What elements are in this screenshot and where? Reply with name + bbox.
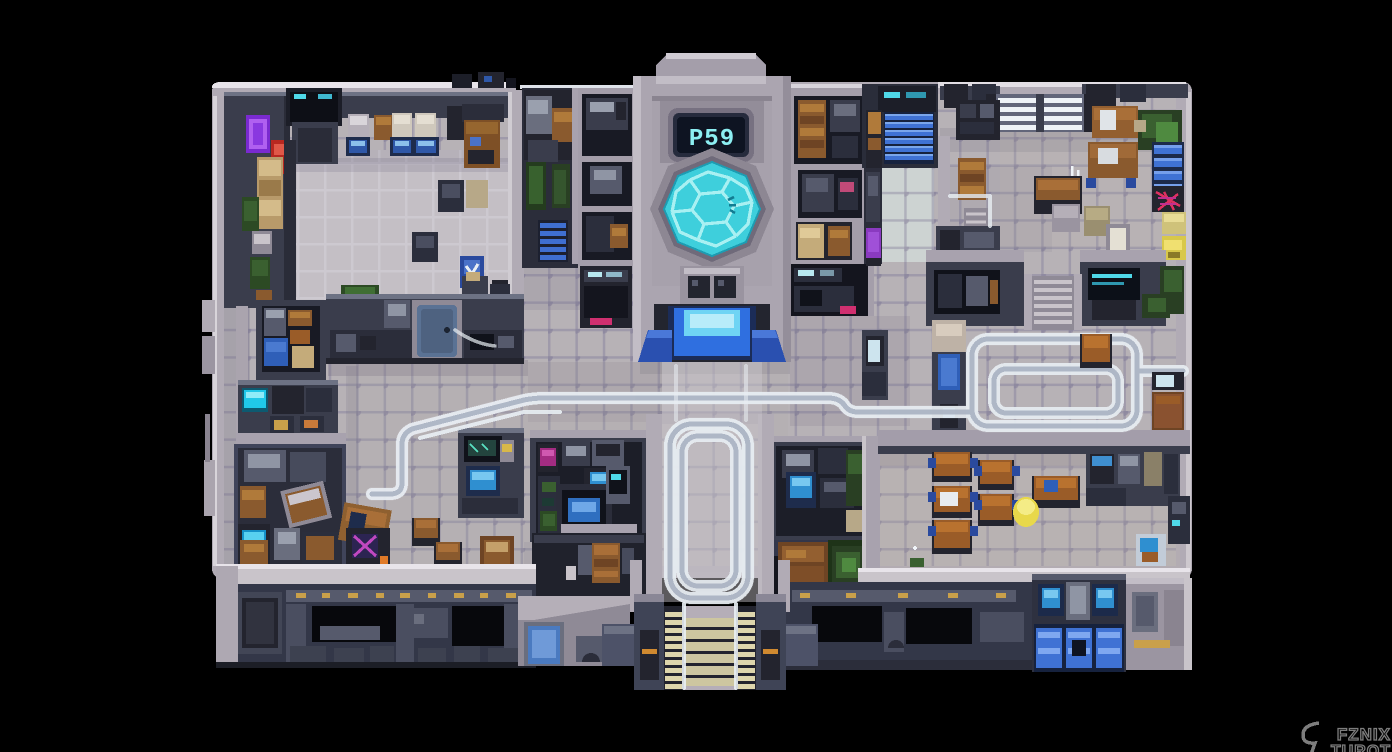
- svg-text:FZNIX: FZNIX: [1337, 725, 1391, 744]
- svg-text:TUROT: TUROT: [1331, 743, 1391, 752]
